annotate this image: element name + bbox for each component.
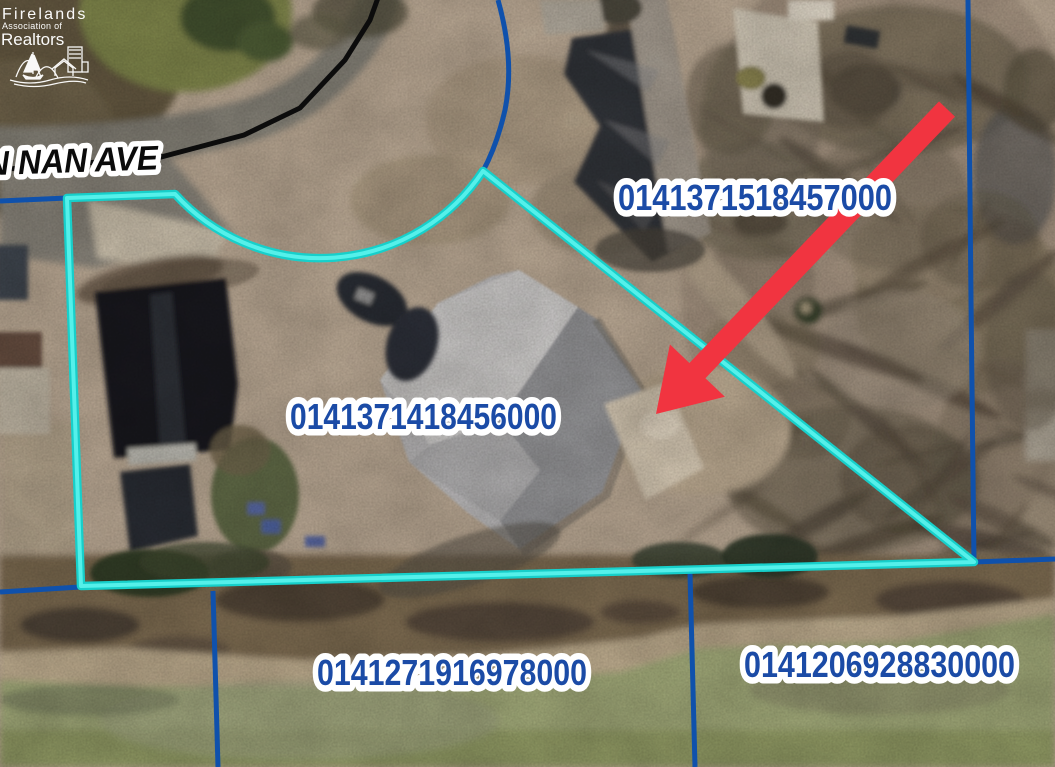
svg-text:0141371518457000: 0141371518457000 [618, 177, 892, 218]
svg-text:N NAN AVE: N NAN AVE [0, 139, 160, 183]
svg-text:Realtors: Realtors [1, 30, 64, 49]
svg-text:0141271916978000: 0141271916978000 [317, 652, 587, 693]
svg-text:0141206928830000: 0141206928830000 [744, 644, 1015, 685]
svg-text:0141371418456000: 0141371418456000 [290, 396, 557, 437]
